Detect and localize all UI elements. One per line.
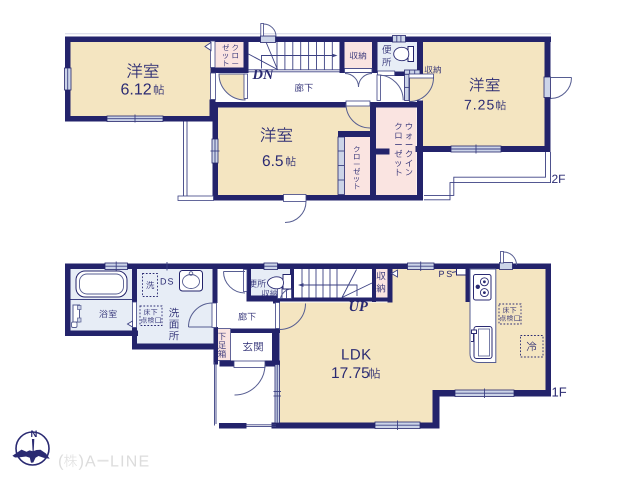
svg-text:7.25: 7.25 <box>464 97 495 113</box>
svg-text:): ) <box>79 453 85 471</box>
svg-text:LDK: LDK <box>341 347 372 364</box>
svg-text:DS: DS <box>160 276 175 286</box>
svg-text:17.75: 17.75 <box>331 365 370 382</box>
svg-text:1F: 1F <box>552 385 567 400</box>
svg-text:N: N <box>31 429 38 440</box>
svg-text:6.12: 6.12 <box>121 81 152 98</box>
svg-text:UP: UP <box>349 299 368 315</box>
svg-text:6.5: 6.5 <box>262 153 284 170</box>
svg-text:LINE: LINE <box>110 454 150 471</box>
svg-text:PS: PS <box>439 269 455 279</box>
svg-text:A: A <box>85 454 97 471</box>
svg-text:2F: 2F <box>552 172 566 186</box>
svg-text:DN: DN <box>252 67 274 83</box>
svg-text:(: ( <box>58 453 65 471</box>
